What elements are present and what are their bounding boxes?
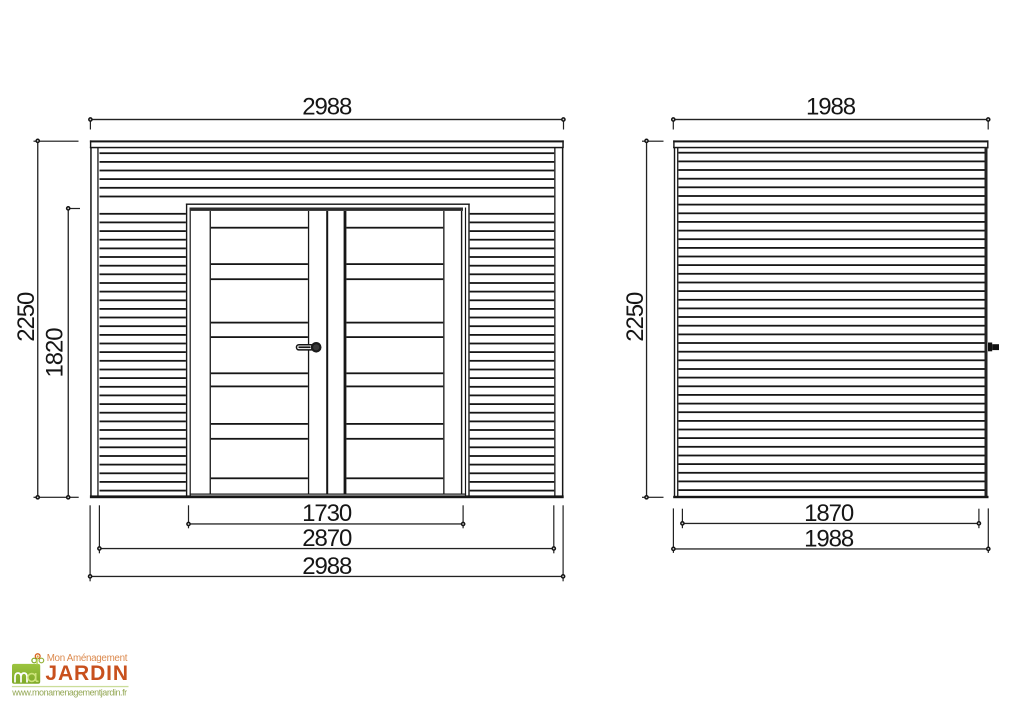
svg-text:2988: 2988 — [302, 553, 352, 580]
svg-text:1870: 1870 — [804, 500, 854, 527]
svg-text:1820: 1820 — [42, 328, 69, 378]
svg-text:www.monamenagementjardin.fr: www.monamenagementjardin.fr — [11, 687, 127, 697]
svg-text:2988: 2988 — [302, 94, 352, 121]
svg-text:2870: 2870 — [302, 525, 352, 552]
svg-text:1988: 1988 — [806, 94, 856, 121]
svg-text:2250: 2250 — [13, 292, 40, 342]
svg-text:1730: 1730 — [302, 500, 352, 527]
svg-text:1988: 1988 — [804, 525, 854, 552]
svg-text:2250: 2250 — [622, 292, 649, 342]
svg-text:JARDIN: JARDIN — [45, 662, 129, 685]
